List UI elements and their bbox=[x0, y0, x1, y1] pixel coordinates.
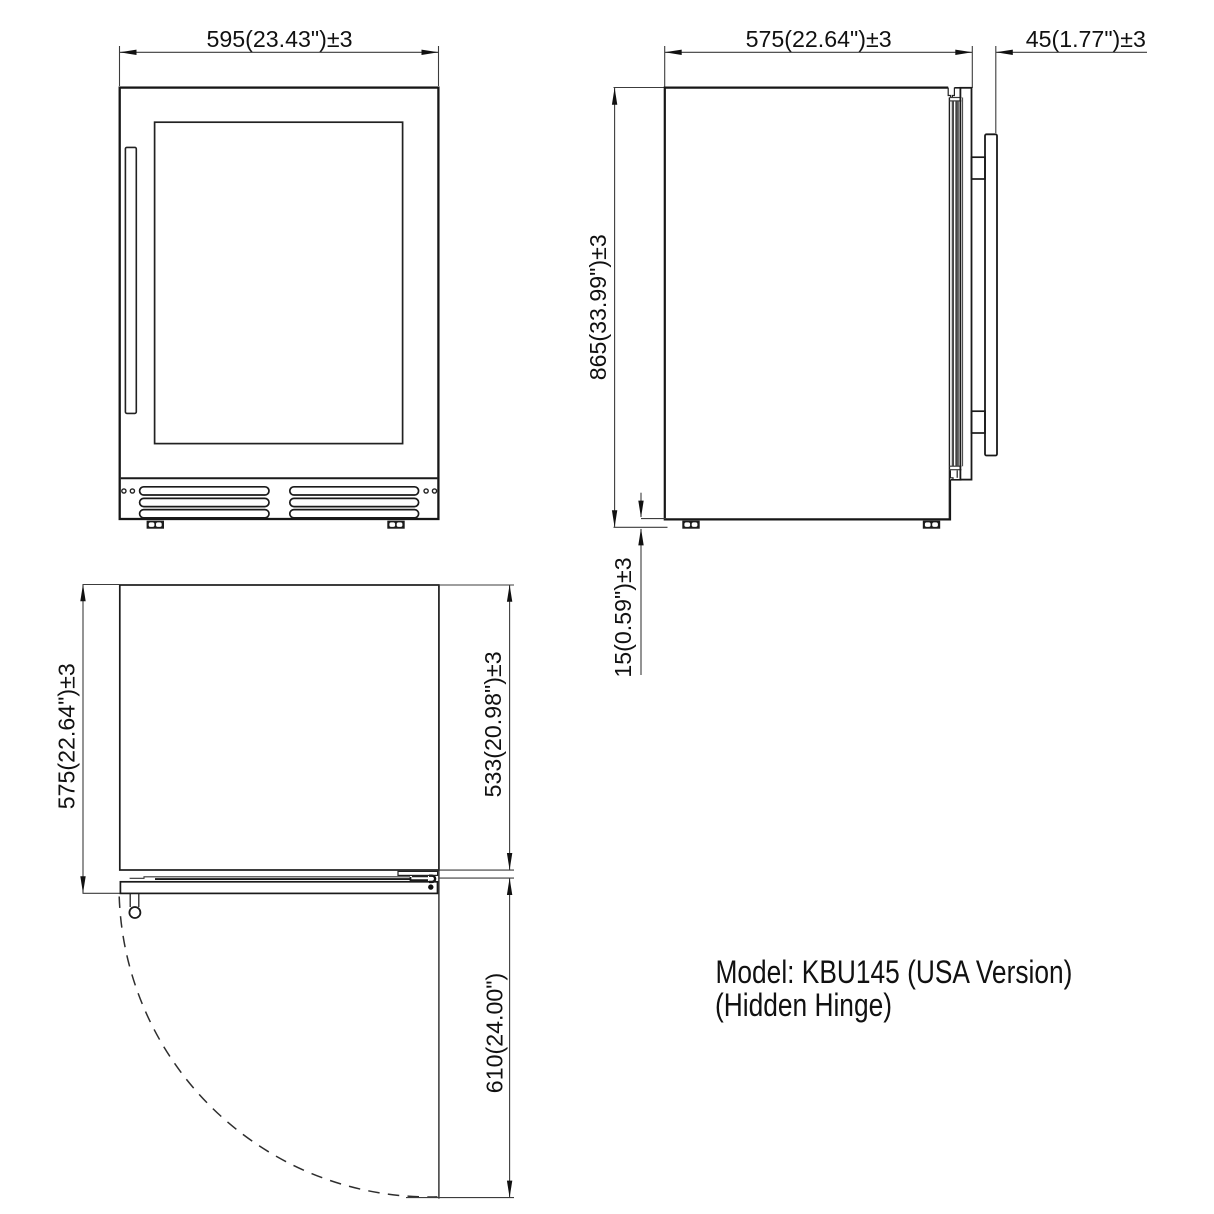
svg-text:575(22.64")±3: 575(22.64")±3 bbox=[746, 26, 892, 52]
svg-text:45(1.77")±3: 45(1.77")±3 bbox=[1026, 26, 1146, 52]
svg-text:865(33.99")±3: 865(33.99")±3 bbox=[585, 234, 611, 380]
svg-text:Model: KBU145 (USA Version): Model: KBU145 (USA Version) bbox=[716, 954, 1073, 990]
svg-text:(Hidden Hinge): (Hidden Hinge) bbox=[715, 987, 892, 1023]
svg-text:15(0.59")±3: 15(0.59")±3 bbox=[610, 557, 636, 677]
svg-text:575(22.64")±3: 575(22.64")±3 bbox=[53, 663, 79, 809]
svg-text:533(20.98")±3: 533(20.98")±3 bbox=[480, 651, 506, 797]
svg-text:595(23.43")±3: 595(23.43")±3 bbox=[206, 26, 352, 52]
svg-text:610(24.00"): 610(24.00") bbox=[481, 973, 507, 1093]
